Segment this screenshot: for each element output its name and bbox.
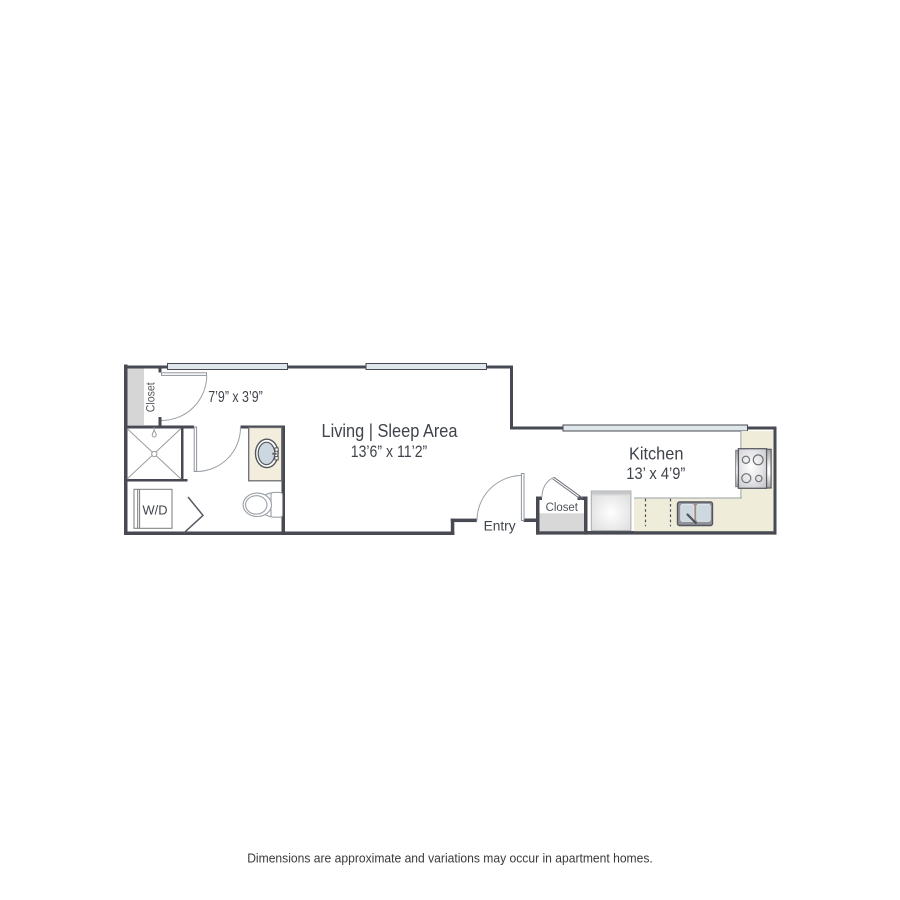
svg-text:Kitchen: Kitchen [629,444,684,464]
svg-text:13’6” x 11’2”: 13’6” x 11’2” [351,443,428,461]
svg-text:Dimensions are approximate and: Dimensions are approximate and variation… [247,851,653,865]
svg-text:Closet: Closet [144,382,158,413]
svg-text:Closet: Closet [546,502,579,514]
svg-text:Living | Sleep Area: Living | Sleep Area [322,421,459,441]
svg-text:7’9” x 3’9”: 7’9” x 3’9” [208,389,263,406]
svg-text:13’ x 4’9”: 13’ x 4’9” [626,465,685,483]
svg-text:W/D: W/D [143,502,168,517]
svg-text:Entry: Entry [484,519,516,534]
